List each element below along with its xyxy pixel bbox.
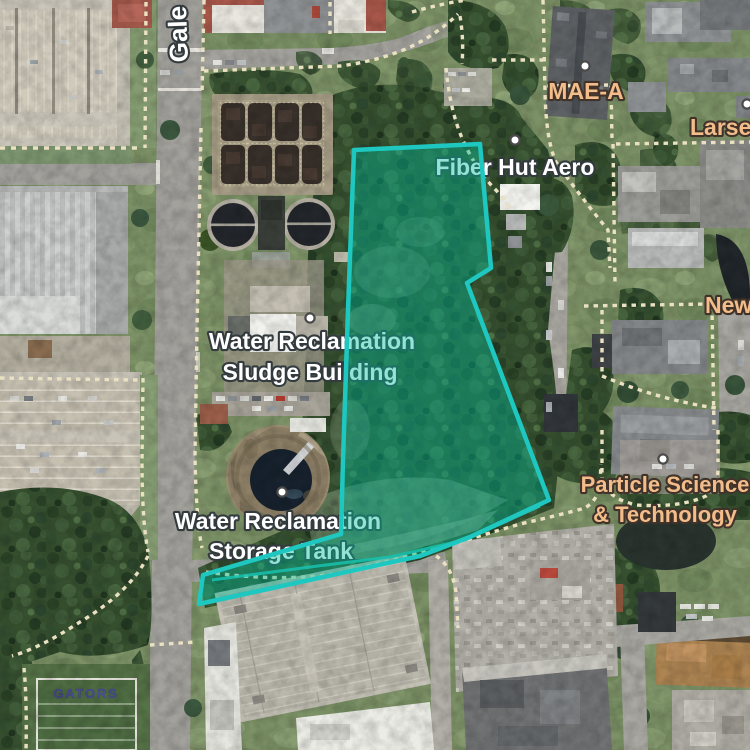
svg-text:& Technology: & Technology bbox=[593, 502, 738, 527]
svg-text:New: New bbox=[705, 292, 750, 318]
svg-text:Larsen: Larsen bbox=[690, 114, 750, 140]
svg-text:Particle Science: Particle Science bbox=[581, 472, 750, 497]
svg-text:Gale: Gale bbox=[162, 5, 194, 62]
svg-text:MAE-A: MAE-A bbox=[548, 78, 623, 104]
